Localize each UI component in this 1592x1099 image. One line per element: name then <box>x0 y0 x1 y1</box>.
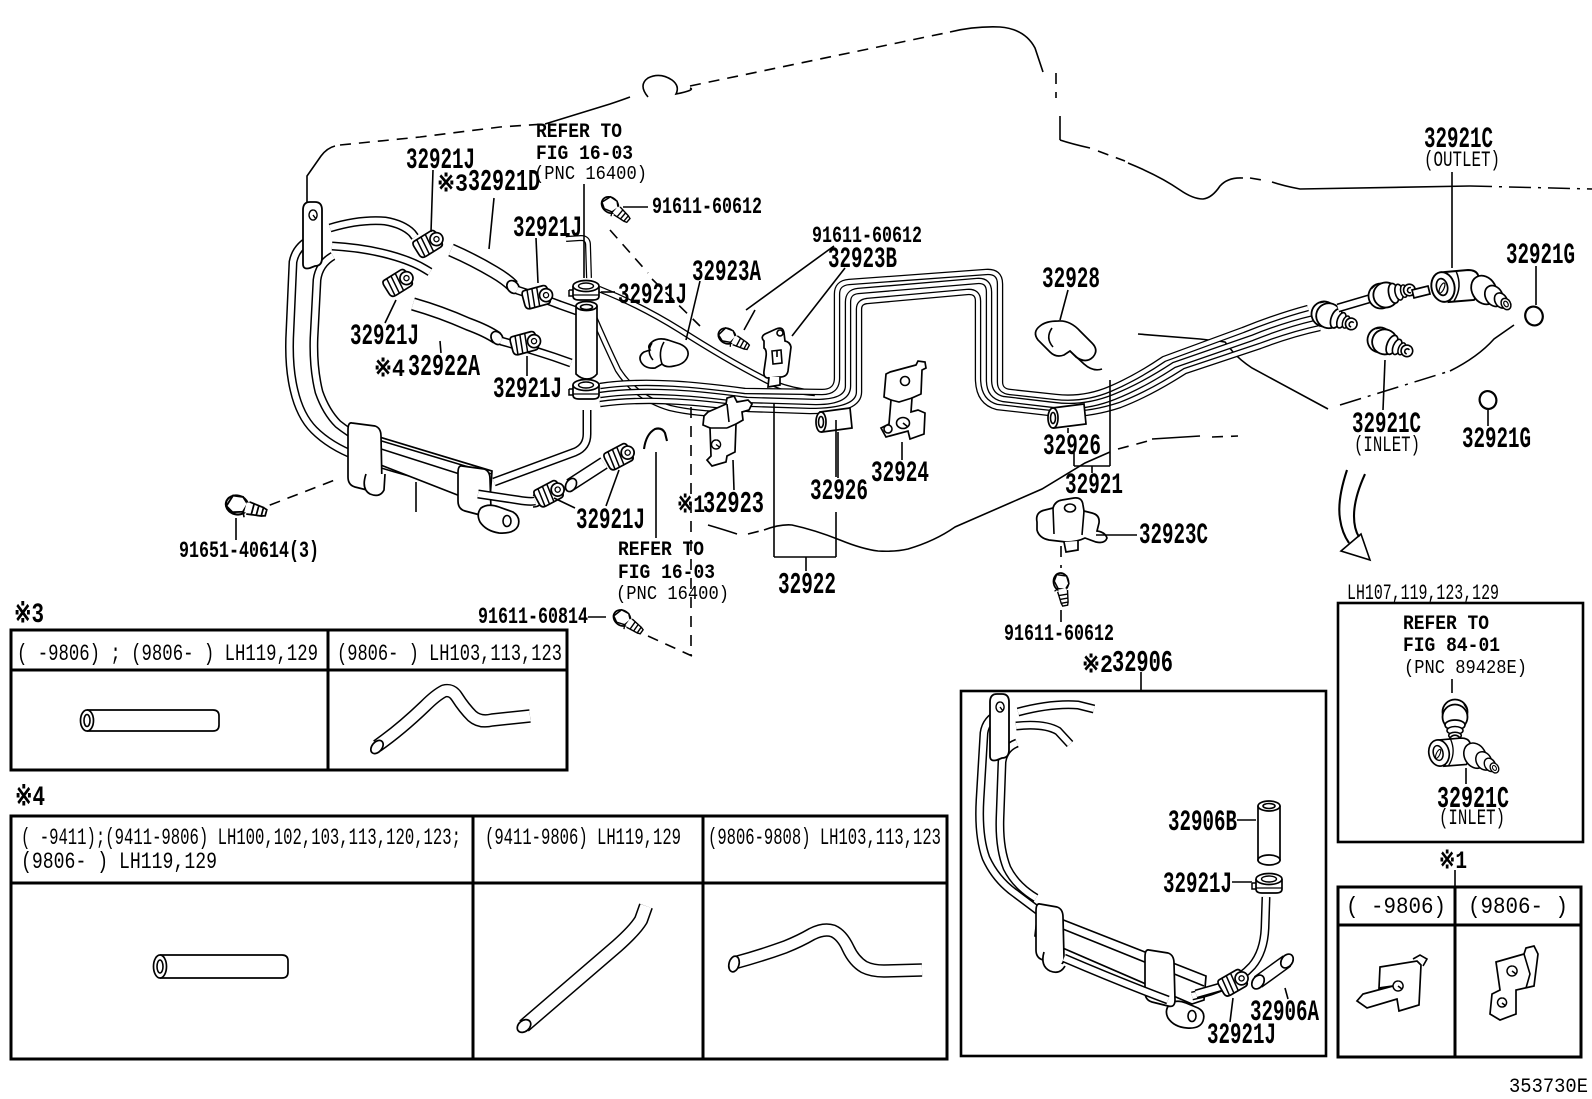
svg-text:32922A: 32922A <box>408 350 480 385</box>
svg-text:(PNC 89428E): (PNC 89428E) <box>1404 657 1527 679</box>
svg-text:※4: ※4 <box>374 355 405 384</box>
svg-text:32921J: 32921J <box>618 279 687 312</box>
svg-text:32926: 32926 <box>1043 430 1101 463</box>
svg-text:(9806- ): (9806- ) <box>1468 894 1568 921</box>
svg-text:91611-60612: 91611-60612 <box>1004 621 1114 648</box>
svg-text:※1: ※1 <box>677 491 705 520</box>
svg-text:FIG 84-01: FIG 84-01 <box>1403 635 1500 658</box>
svg-text:(9806- ) LH103,113,123: (9806- ) LH103,113,123 <box>337 641 562 668</box>
svg-text:(9806- ) LH119,129: (9806- ) LH119,129 <box>21 849 217 876</box>
svg-text:32906B: 32906B <box>1168 806 1237 839</box>
svg-text:※4: ※4 <box>15 783 45 814</box>
svg-text:※3: ※3 <box>437 170 468 199</box>
svg-text:32906: 32906 <box>1112 646 1173 681</box>
svg-text:REFER TO: REFER TO <box>1403 613 1489 636</box>
svg-text:32921: 32921 <box>1065 469 1123 502</box>
svg-text:(PNC 16400): (PNC 16400) <box>534 163 647 185</box>
svg-text:32924: 32924 <box>871 457 929 490</box>
svg-text:32921J: 32921J <box>1163 868 1232 901</box>
svg-text:(9806-9808) LH103,113,123: (9806-9808) LH103,113,123 <box>708 825 941 852</box>
svg-text:353730E: 353730E <box>1509 1076 1588 1099</box>
svg-text:32921J: 32921J <box>576 504 645 537</box>
svg-text:32921J: 32921J <box>1207 1019 1276 1052</box>
svg-text:( -9806): ( -9806) <box>1346 894 1446 921</box>
svg-text:32921J: 32921J <box>513 212 582 245</box>
svg-text:32923A: 32923A <box>692 256 761 289</box>
svg-text:32921G: 32921G <box>1506 239 1575 272</box>
svg-text:REFER TO: REFER TO <box>618 539 704 562</box>
svg-text:(INLET): (INLET) <box>1439 806 1505 831</box>
svg-text:91651-40614(3): 91651-40614(3) <box>179 538 319 565</box>
svg-text:REFER TO: REFER TO <box>536 121 622 144</box>
svg-text:32923B: 32923B <box>828 243 897 276</box>
svg-text:(INLET): (INLET) <box>1354 433 1420 458</box>
svg-text:32926: 32926 <box>810 475 868 508</box>
svg-text:32921G: 32921G <box>1462 423 1531 456</box>
svg-text:32923C: 32923C <box>1139 519 1208 552</box>
svg-text:(PNC 16400): (PNC 16400) <box>616 583 729 605</box>
svg-text:(OUTLET): (OUTLET) <box>1424 148 1500 173</box>
svg-text:※3: ※3 <box>14 600 44 631</box>
svg-text:※1: ※1 <box>1439 847 1467 876</box>
svg-text:( -9411);(9411-9806) LH100,: ( -9411);(9411-9806) LH100,102,103,113,1… <box>21 825 461 852</box>
svg-text:※2: ※2 <box>1082 651 1113 680</box>
svg-text:32922: 32922 <box>778 568 836 603</box>
svg-text:32928: 32928 <box>1042 263 1100 296</box>
svg-text:FIG 16-03: FIG 16-03 <box>618 562 715 585</box>
svg-text:91611-60814: 91611-60814 <box>478 604 588 631</box>
svg-text:32923: 32923 <box>703 487 764 522</box>
svg-text:32921D: 32921D <box>468 165 540 200</box>
svg-text:32921J: 32921J <box>350 320 419 353</box>
svg-text:(9411-9806) LH119,129: (9411-9806) LH119,129 <box>485 825 681 852</box>
svg-text:91611-60612: 91611-60612 <box>652 194 762 221</box>
svg-text:32921J: 32921J <box>493 373 562 406</box>
svg-text:( -9806) ; (9806- ) LH: ( -9806) ; (9806- ) LH119,129 <box>17 641 318 668</box>
